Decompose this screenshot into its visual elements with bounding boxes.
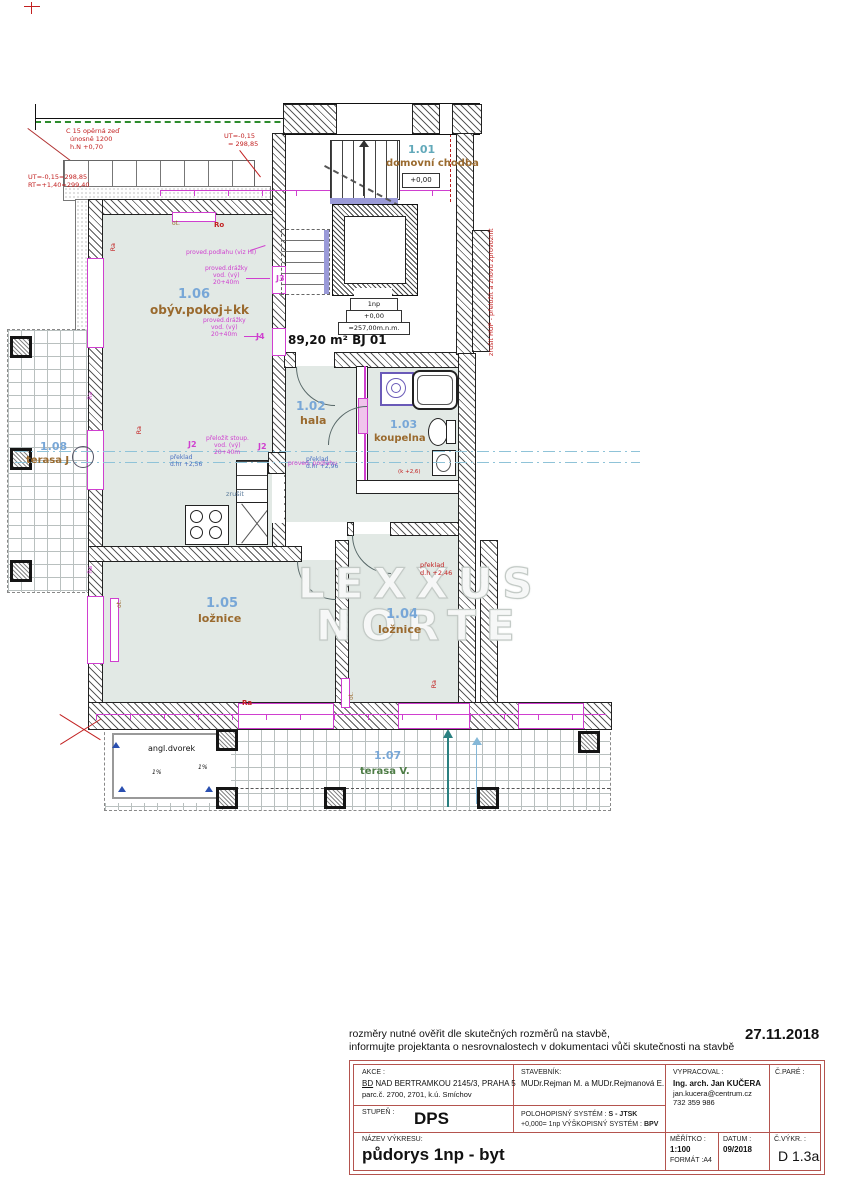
toilet (428, 418, 448, 446)
divider (354, 1105, 665, 1106)
leader-line (246, 278, 270, 279)
room-name-108: terasa J (26, 455, 69, 467)
room-name-107: terasa V. (360, 766, 410, 778)
lintel-note-256: d.hr +2,56 (170, 462, 202, 469)
vypracoval-label: VYPRACOVAL : (673, 1069, 724, 1077)
dimension-band-south (96, 714, 606, 720)
cvykr-label: Č.VÝKR. : (774, 1136, 806, 1144)
stair-direction-line (363, 146, 364, 196)
room-number-105: 1.05 (206, 597, 238, 612)
divider (354, 1132, 820, 1133)
note-floor: proved.podlahu (viz HI) (186, 250, 256, 257)
elevator-door (354, 288, 392, 296)
window-west-105 (87, 596, 104, 664)
leader-line (244, 336, 260, 337)
divider (513, 1065, 514, 1132)
demolition-mark (60, 719, 101, 745)
cpare-label: Č.PARÉ : (775, 1069, 804, 1077)
room-number-104: 1.04 (386, 608, 418, 623)
elevator-level-000: +0,00 (364, 312, 384, 320)
kitchen-stove (185, 505, 229, 545)
kitchen-fridge (236, 502, 268, 545)
meritko-label: MĚŘÍTKO : (670, 1136, 706, 1144)
window-label-j3: J3 (276, 274, 285, 283)
drawing-number: D 1.3a (778, 1148, 819, 1164)
burner-icon (190, 526, 203, 539)
bathtub (412, 370, 458, 410)
gas-note: zrušit HUP - přeložit a znovu zprovoznit (488, 186, 495, 356)
stair-flight-lower (282, 230, 329, 294)
room-number-107: 1.07 (374, 750, 401, 763)
level-note-rt: RT=+1,40=299,40 (28, 182, 90, 189)
format-label: FORMÁT :A4 (670, 1157, 712, 1165)
cancel-note: zrušit (226, 491, 244, 498)
survey-mark (118, 786, 126, 792)
burner-icon (209, 526, 222, 539)
boundary-line-vert (35, 104, 36, 130)
slope-label: 1% (152, 770, 162, 777)
sink (432, 450, 456, 476)
ra-label: Ra (136, 426, 143, 434)
window-j4 (272, 328, 286, 356)
stair-direction-arrow (359, 140, 369, 147)
courtyard-label: angl.dvorek (148, 744, 195, 753)
radiator-label: ot. (172, 221, 180, 228)
wall-bath-south (356, 480, 460, 494)
level-note-ut2: = 298,85 (228, 141, 258, 148)
radiator-label: ot. (117, 600, 124, 608)
slope-arrow-head (472, 737, 482, 745)
floor-plan-sheet: 1np +0,00 ≈257,00m.n.m. LEXXUS NORTE C 1… (0, 0, 849, 1200)
title-block-inner: AKCE : BD NAD BERTRAMKOU 2145/3, PRAHA 5… (353, 1064, 821, 1171)
wall-hala-north (334, 352, 460, 368)
elevator-level-alt: ≈257,00m.n.m. (348, 324, 399, 332)
akce-value-line2: parc.č. 2700, 2701, k.ú. Smíchov (362, 1091, 472, 1100)
flue-shaft (268, 452, 286, 474)
area-label: 89,20 m² BJ 01 (288, 334, 387, 348)
slope-label: 1% (198, 765, 208, 772)
vypracoval-name: Ing. arch. Jan KUČERA (673, 1079, 761, 1088)
level-101: +0,00 (410, 176, 431, 184)
stavebnik-label: STAVEBNÍK: (521, 1069, 561, 1077)
washer-drum-inner (391, 383, 401, 393)
room-name-103: koupelna (374, 433, 426, 445)
room-number-106: 1.06 (178, 288, 210, 303)
burner-icon (190, 510, 203, 523)
akce-value-line1: BD NAD BERTRAMKOU 2145/3, PRAHA 5 (362, 1079, 516, 1088)
room-floor-passage (356, 492, 458, 522)
stair-landing-strip (324, 230, 329, 294)
divider (665, 1065, 666, 1170)
stupen-label: STUPEŇ : (362, 1109, 394, 1117)
divider (769, 1065, 770, 1170)
terrace-column (216, 787, 238, 809)
stupen-value: DPS (414, 1109, 449, 1129)
datum-label: DATUM : (723, 1136, 751, 1144)
room-number-102: 1.02 (296, 400, 326, 414)
terrace-column (10, 336, 32, 358)
stavebnik-value: MUDr.Rejman M. a MUDr.Rejmanová E. (521, 1079, 664, 1088)
terrace-column (324, 787, 346, 809)
disclaimer-line2: informujte projektanta o nesrovnalostech… (349, 1041, 734, 1053)
level-box-101: +0,00 (402, 173, 440, 188)
section-cut-line (15, 451, 640, 452)
note-riser: 20+40m (214, 450, 240, 457)
system2-value: BPV (644, 1121, 658, 1128)
lintel-note-246: d.h +2,46 (420, 570, 452, 577)
ra-label-dim: Ra (88, 392, 95, 400)
wall-street-seg (412, 104, 440, 134)
terrace-column (477, 787, 499, 809)
wall-east-lower (458, 353, 476, 705)
boundary-mark (24, 6, 40, 7)
lintel-note-296: d.hr +2,96 (306, 464, 338, 471)
elevator-level-1np: 1np (368, 300, 380, 308)
title-block: AKCE : BD NAD BERTRAMKOU 2145/3, PRAHA 5… (349, 1060, 825, 1175)
wall-104-north (390, 522, 460, 536)
toilet-tank (446, 420, 456, 444)
sink-basin (436, 454, 451, 472)
wall-street-seg (452, 104, 482, 134)
wall-105-north (88, 546, 302, 562)
divider (718, 1132, 719, 1170)
drawing-title: půdorys 1np - byt (362, 1145, 505, 1165)
wall-opening (272, 473, 284, 523)
elevator-cabin (344, 216, 406, 284)
boundary-mark (31, 2, 32, 14)
room-number-101: 1.01 (408, 144, 435, 157)
akce-rest: NAD BERTRAMKOU 2145/3, PRAHA 5 (373, 1079, 516, 1088)
terrace-column (10, 560, 32, 582)
room-name-105: ložnice (198, 613, 241, 626)
stair-flight-upper (330, 140, 400, 200)
note-chase: 20+40m (213, 280, 239, 287)
note-chase2: 20+40m (211, 332, 237, 339)
vypracoval-phone: 732 359 986 (673, 1099, 715, 1108)
terrace-column (578, 731, 600, 753)
dimension-band-north (160, 190, 450, 196)
ra-label-dim: Ra (88, 566, 95, 574)
bathtub-inner (417, 375, 453, 405)
terrace-column (216, 729, 238, 751)
window-label-j2: J2 (258, 442, 267, 451)
burner-icon (209, 510, 222, 523)
room-name-102: hala (300, 415, 326, 428)
wall-104-north (347, 522, 354, 536)
nazev-label: NÁZEV VÝKRESU: (362, 1136, 423, 1144)
slope-arrow (476, 744, 477, 804)
room-name-106: obýv.pokoj+kk (150, 304, 249, 318)
system2-label: +0,000= 1np VÝŠKOPISNÝ SYSTÉM : (521, 1121, 642, 1128)
room-name-104: ložnice (378, 624, 421, 637)
window-west-living (87, 258, 104, 348)
system-line2: +0,000= 1np VÝŠKOPISNÝ SYSTÉM : BPV (521, 1121, 658, 1129)
wall-street-seg (283, 104, 337, 134)
room-number-108: 1.08 (40, 441, 67, 454)
datum-value: 09/2018 (723, 1145, 752, 1154)
survey-mark (112, 742, 120, 748)
radiator-label: ot. (349, 692, 356, 700)
disclaimer-line1: rozměry nutné ověřit dle skutečných rozm… (349, 1028, 610, 1040)
probe-circle (72, 446, 94, 468)
revision-date: 27.11.2018 (745, 1026, 819, 1043)
ra-label: Ra (242, 699, 252, 707)
ra-label: Ra (431, 680, 438, 688)
akce-label: AKCE : (362, 1069, 385, 1077)
drain-arrow (447, 737, 449, 807)
room-number-103: 1.03 (390, 419, 417, 432)
bath-level-note: (k +2,6) (398, 469, 421, 475)
survey-mark (205, 786, 213, 792)
ra-label: Ra (110, 243, 117, 251)
ra-label: Ro (214, 221, 224, 229)
system-line1: POLOHOPISNÝ SYSTÉM : S - JTSK (521, 1111, 637, 1119)
system-label: POLOHOPISNÝ SYSTÉM : (521, 1111, 607, 1118)
room-name-101: domovní chodba (386, 158, 479, 170)
akce-bd: BD (362, 1079, 373, 1088)
retaining-note: h.N +0,70 (70, 144, 103, 151)
drain-arrow-head (443, 729, 453, 738)
meritko-value: 1:100 (670, 1145, 690, 1154)
sidewalk-tiles (63, 160, 255, 188)
washing-machine (380, 372, 414, 406)
system-value: S - JTSK (609, 1111, 638, 1118)
window-label-j2: J2 (188, 440, 197, 449)
